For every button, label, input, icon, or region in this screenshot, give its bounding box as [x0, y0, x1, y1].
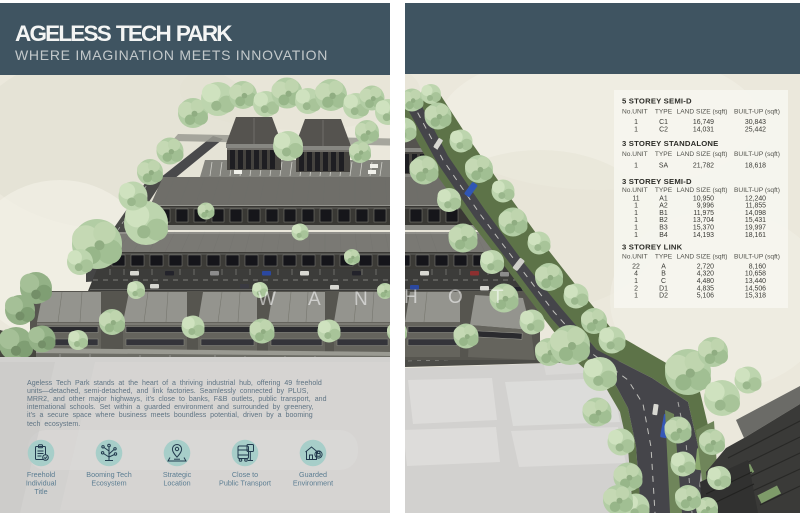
svg-text:BUILT-UP (sqft): BUILT-UP (sqft) — [734, 253, 780, 260]
svg-text:B: B — [661, 271, 666, 278]
svg-text:BUILT-UP (sqft): BUILT-UP (sqft) — [734, 187, 780, 194]
svg-text:14,193: 14,193 — [693, 232, 714, 239]
svg-text:O: O — [448, 287, 463, 308]
svg-text:Public Transport: Public Transport — [219, 479, 271, 488]
svg-text:14,098: 14,098 — [745, 210, 766, 217]
svg-text:BUILT-UP (sqft): BUILT-UP (sqft) — [734, 151, 780, 158]
svg-text:3 STOREY STANDALONE: 3 STOREY STANDALONE — [622, 139, 719, 148]
svg-text:B2: B2 — [659, 217, 668, 224]
svg-text:10,950: 10,950 — [693, 195, 714, 202]
svg-text:3 STOREY SEMI-D: 3 STOREY SEMI-D — [622, 177, 692, 186]
svg-text:10,658: 10,658 — [745, 271, 766, 278]
svg-text:4,320: 4,320 — [697, 271, 714, 278]
svg-text:1: 1 — [634, 203, 638, 210]
svg-text:15,431: 15,431 — [745, 217, 766, 224]
svg-text:No.UNIT: No.UNIT — [622, 151, 648, 158]
svg-text:22: 22 — [632, 263, 640, 270]
svg-text:SA: SA — [659, 163, 669, 170]
svg-text:LAND SIZE (sqft): LAND SIZE (sqft) — [677, 109, 728, 116]
svg-text:No.UNIT: No.UNIT — [622, 187, 648, 194]
svg-text:TYPE: TYPE — [655, 109, 673, 116]
svg-text:C2: C2 — [659, 126, 668, 133]
svg-text:Location: Location — [163, 479, 190, 488]
svg-text:1: 1 — [634, 232, 638, 239]
svg-text:21,782: 21,782 — [693, 163, 714, 170]
svg-text:LAND SIZE (sqft): LAND SIZE (sqft) — [677, 187, 728, 194]
svg-text:A2: A2 — [659, 203, 668, 210]
svg-text:19,997: 19,997 — [745, 225, 766, 232]
svg-text:4,835: 4,835 — [697, 285, 714, 292]
svg-text:B4: B4 — [659, 232, 668, 239]
svg-text:11: 11 — [632, 195, 639, 202]
svg-text:5,106: 5,106 — [697, 293, 714, 300]
svg-text:TYPE: TYPE — [655, 253, 673, 260]
svg-text:14,506: 14,506 — [745, 285, 766, 292]
svg-text:D2: D2 — [659, 293, 668, 300]
svg-text:B3: B3 — [659, 225, 668, 232]
svg-text:C1: C1 — [659, 119, 668, 126]
svg-text:LAND SIZE (sqft): LAND SIZE (sqft) — [677, 151, 728, 158]
svg-text:H: H — [404, 287, 418, 308]
svg-text:2,720: 2,720 — [697, 263, 714, 270]
svg-text:No.UNIT: No.UNIT — [622, 253, 648, 260]
svg-text:18,161: 18,161 — [745, 232, 766, 239]
svg-text:1: 1 — [634, 225, 638, 232]
svg-text:1: 1 — [634, 217, 638, 224]
svg-text:A1: A1 — [659, 195, 668, 202]
svg-text:W: W — [258, 289, 276, 310]
svg-text:30,843: 30,843 — [745, 119, 766, 126]
svg-text:1: 1 — [634, 278, 638, 285]
svg-text:14,031: 14,031 — [693, 126, 714, 133]
svg-text:13,704: 13,704 — [693, 217, 714, 224]
svg-text:11,855: 11,855 — [745, 203, 766, 210]
svg-text:Title: Title — [34, 487, 47, 496]
svg-text:15,370: 15,370 — [693, 225, 714, 232]
svg-text:LAND SIZE (sqft): LAND SIZE (sqft) — [677, 253, 728, 260]
svg-text:13,440: 13,440 — [745, 278, 766, 285]
svg-text:16,749: 16,749 — [693, 119, 714, 126]
svg-text:2: 2 — [634, 285, 638, 292]
svg-text:1: 1 — [634, 293, 638, 300]
svg-text:9,996: 9,996 — [697, 203, 714, 210]
svg-text:T: T — [492, 287, 504, 308]
svg-text:A: A — [308, 289, 321, 310]
svg-text:18,618: 18,618 — [745, 163, 766, 170]
svg-text:5 STOREY SEMI-D: 5 STOREY SEMI-D — [622, 97, 692, 106]
svg-text:1: 1 — [634, 119, 638, 126]
svg-text:4,480: 4,480 — [697, 278, 714, 285]
svg-text:C: C — [661, 278, 666, 285]
svg-text:25,442: 25,442 — [745, 126, 766, 133]
svg-text:Ecosystem: Ecosystem — [91, 479, 126, 488]
svg-text:4: 4 — [634, 271, 638, 278]
svg-text:3 STOREY LINK: 3 STOREY LINK — [622, 243, 683, 252]
svg-text:No.UNIT: No.UNIT — [622, 109, 648, 116]
svg-text:D1: D1 — [659, 285, 668, 292]
svg-text:11,975: 11,975 — [693, 210, 714, 217]
svg-text:B1: B1 — [659, 210, 668, 217]
svg-text:Environment: Environment — [293, 479, 333, 488]
svg-text:1: 1 — [634, 126, 638, 133]
svg-text:1: 1 — [634, 163, 638, 170]
svg-text:N: N — [354, 289, 368, 310]
svg-text:15,318: 15,318 — [745, 293, 766, 300]
svg-text:8,160: 8,160 — [749, 263, 766, 270]
svg-text:BUILT-UP (sqft): BUILT-UP (sqft) — [734, 109, 780, 116]
svg-text:1: 1 — [634, 210, 638, 217]
svg-text:A: A — [661, 263, 666, 270]
svg-text:TYPE: TYPE — [655, 187, 673, 194]
svg-text:12,240: 12,240 — [745, 195, 766, 202]
svg-text:TYPE: TYPE — [655, 151, 673, 158]
